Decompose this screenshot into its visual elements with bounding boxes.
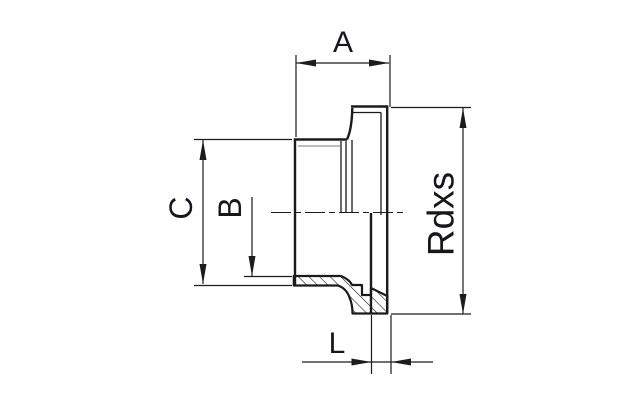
dim-c-arrow-top <box>200 140 207 160</box>
dim-b-group <box>244 197 292 277</box>
dim-l-arrow-left <box>352 359 372 366</box>
technical-drawing: A C B Rdxs <box>0 0 640 401</box>
thread-detail-lines <box>341 113 381 216</box>
dim-label-a: A <box>333 26 353 59</box>
dim-label-l: L <box>329 327 346 360</box>
dim-label-c: C <box>163 196 199 219</box>
dim-a-group <box>296 55 390 137</box>
dim-rdxs-arrow-bottom <box>460 294 467 314</box>
dim-rdxs-arrow-top <box>460 108 467 128</box>
thread-label: Rdxs <box>421 172 462 256</box>
dim-a-arrow-right <box>369 60 389 67</box>
section-hatch-region <box>294 276 387 314</box>
dim-c-arrow-bottom <box>200 264 207 284</box>
dim-a-arrow-left <box>296 60 316 67</box>
dim-b-arrow <box>249 256 256 276</box>
dim-l-group <box>302 315 433 374</box>
dim-label-b: B <box>212 197 248 218</box>
collar-rise <box>347 108 352 140</box>
dim-l-arrow-right <box>391 359 411 366</box>
fitting-section-view: A C B Rdxs <box>0 0 640 401</box>
